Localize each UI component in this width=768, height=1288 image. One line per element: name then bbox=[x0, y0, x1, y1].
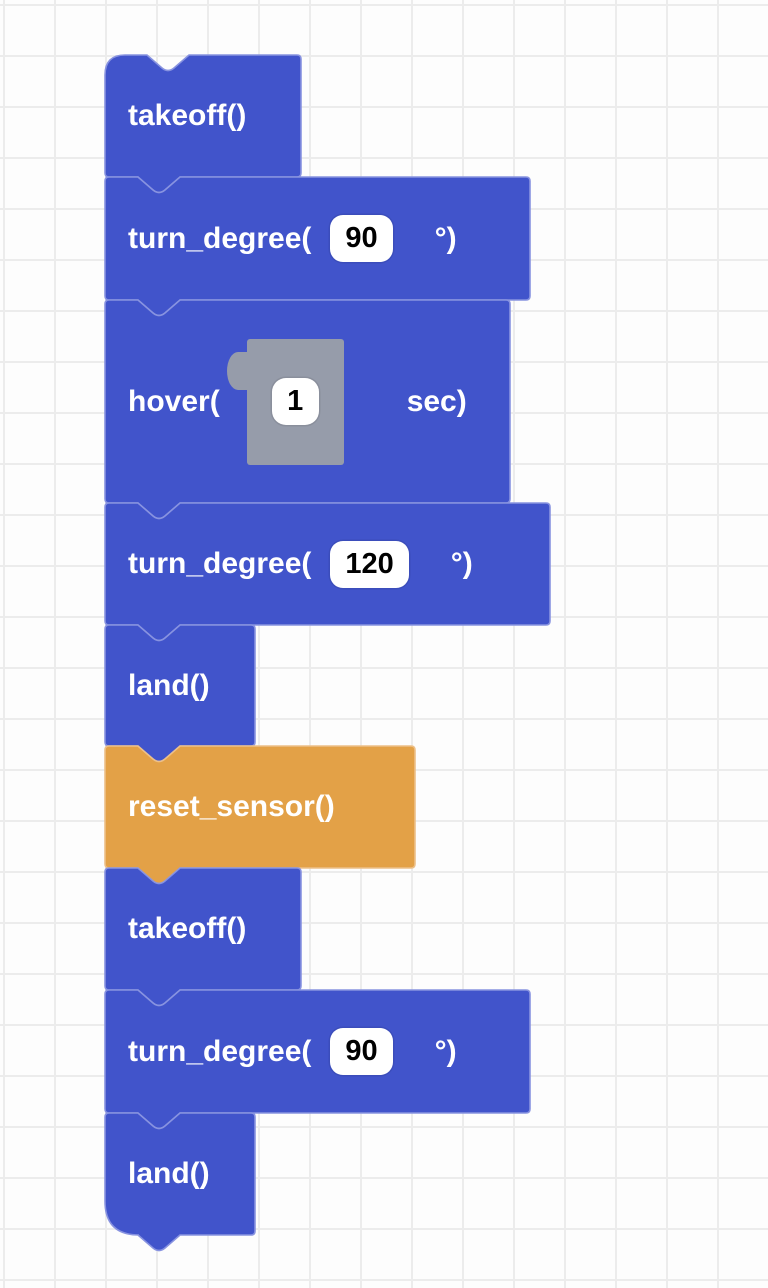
block-land-1[interactable]: land() bbox=[105, 625, 255, 746]
block-label: turn_degree( bbox=[128, 547, 311, 581]
block-label-suffix: °) bbox=[451, 547, 473, 581]
block-reset-sensor[interactable]: reset_sensor() bbox=[105, 746, 415, 868]
block-takeoff-2[interactable]: takeoff() bbox=[105, 868, 301, 990]
block-label: land() bbox=[128, 1157, 210, 1191]
seconds-value-field[interactable]: 1 bbox=[272, 378, 319, 425]
block-label: hover( bbox=[128, 385, 220, 419]
block-land-2[interactable]: land() bbox=[105, 1113, 255, 1235]
block-label: turn_degree( bbox=[128, 1035, 311, 1069]
block-turn-degree-3[interactable]: turn_degree( 90 °) bbox=[105, 990, 530, 1113]
block-hover-1[interactable]: hover( 1 sec) bbox=[105, 300, 510, 503]
number-shadow-block[interactable]: 1 bbox=[247, 339, 344, 465]
block-label-suffix: sec) bbox=[407, 385, 467, 419]
output-plug-icon bbox=[227, 352, 249, 390]
degree-value-field[interactable]: 120 bbox=[330, 541, 408, 588]
block-label: takeoff() bbox=[128, 99, 246, 133]
block-label: reset_sensor() bbox=[128, 790, 335, 824]
degree-value-field[interactable]: 90 bbox=[330, 215, 392, 262]
degree-value-field[interactable]: 90 bbox=[330, 1028, 392, 1075]
block-turn-degree-2[interactable]: turn_degree( 120 °) bbox=[105, 503, 550, 625]
block-label: takeoff() bbox=[128, 912, 246, 946]
block-label-suffix: °) bbox=[435, 222, 457, 256]
blockly-workspace[interactable]: takeoff() turn_degree( 90 °) hover( 1 se… bbox=[0, 0, 768, 1288]
block-takeoff-1[interactable]: takeoff() bbox=[105, 55, 301, 177]
block-label: land() bbox=[128, 669, 210, 703]
block-label: turn_degree( bbox=[128, 222, 311, 256]
block-label-suffix: °) bbox=[435, 1035, 457, 1069]
block-turn-degree-1[interactable]: turn_degree( 90 °) bbox=[105, 177, 530, 300]
